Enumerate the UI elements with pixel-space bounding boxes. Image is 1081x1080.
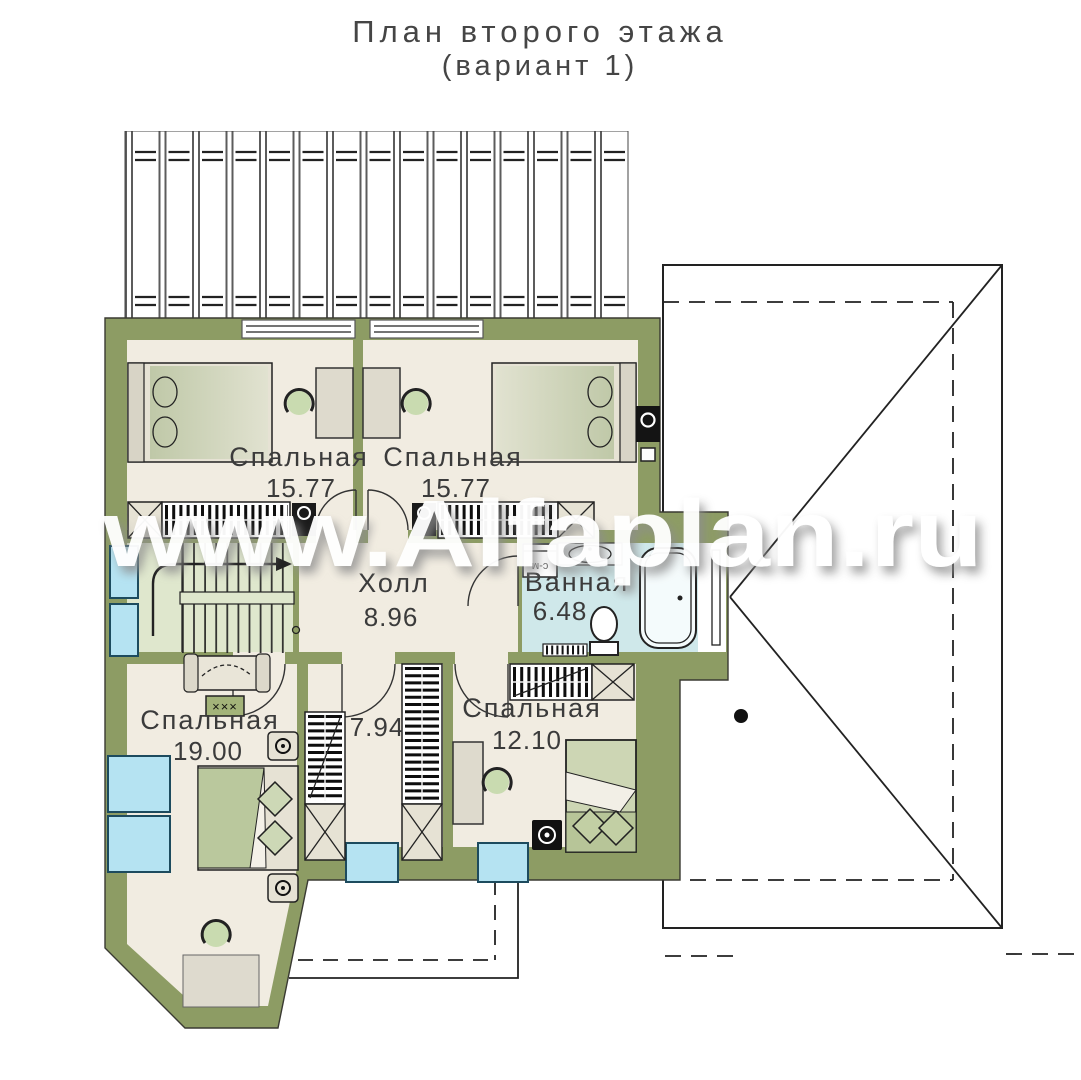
roof-rafters: [125, 131, 628, 318]
label-bathroom-area: 6.48: [533, 596, 588, 626]
chimney-block: [636, 406, 660, 442]
label-bedroom-tl-name: Спальная: [229, 442, 369, 472]
label-hall-area: 8.96: [364, 602, 419, 632]
chair-br: [485, 770, 509, 794]
toilet-tank: [590, 642, 618, 655]
window-bedroom-bl-1: [108, 756, 170, 812]
label-bedroom-bl-area: 19.00: [173, 736, 243, 766]
desk-br: [453, 742, 483, 824]
label-bedroom-br-name: Спальная: [462, 693, 602, 723]
window-stairs-2: [110, 604, 138, 656]
desk-tl: [316, 368, 353, 438]
label-bedroom-bl-name: Спальная: [140, 705, 280, 735]
floor-plan-svg: с-м ×××: [0, 0, 1081, 1080]
window-top-left: [242, 320, 355, 338]
title-line-1: План второго этажа: [352, 14, 727, 49]
roof-vent-dot: [734, 709, 748, 723]
label-bedroom-tr-name: Спальная: [383, 442, 523, 472]
desk-tr: [363, 368, 400, 438]
title-line-2: (вариант 1): [442, 50, 638, 82]
desk-bay: [183, 955, 259, 1007]
towel-radiator: [543, 644, 587, 656]
porch-outline-right: [665, 954, 1078, 956]
floor-plan-page: с-м ×××: [0, 0, 1081, 1080]
page-title: План второго этажа (вариант 1): [352, 14, 727, 82]
chair-tr: [404, 391, 428, 415]
rafter-mask-top: [100, 104, 660, 131]
toilet-bowl: [591, 607, 617, 641]
window-bedroom-br: [478, 843, 528, 882]
watermark-text: www.Alfaplan.ru: [102, 481, 983, 587]
porch-outline-left: [289, 880, 518, 978]
label-closet-area: 7.94: [350, 712, 405, 742]
window-closet: [346, 843, 398, 882]
sofa: [188, 656, 266, 690]
window-top-right: [370, 320, 483, 338]
chair-tl: [287, 391, 311, 415]
window-bedroom-bl-2: [108, 816, 170, 872]
label-bedroom-br-area: 12.10: [492, 725, 562, 755]
